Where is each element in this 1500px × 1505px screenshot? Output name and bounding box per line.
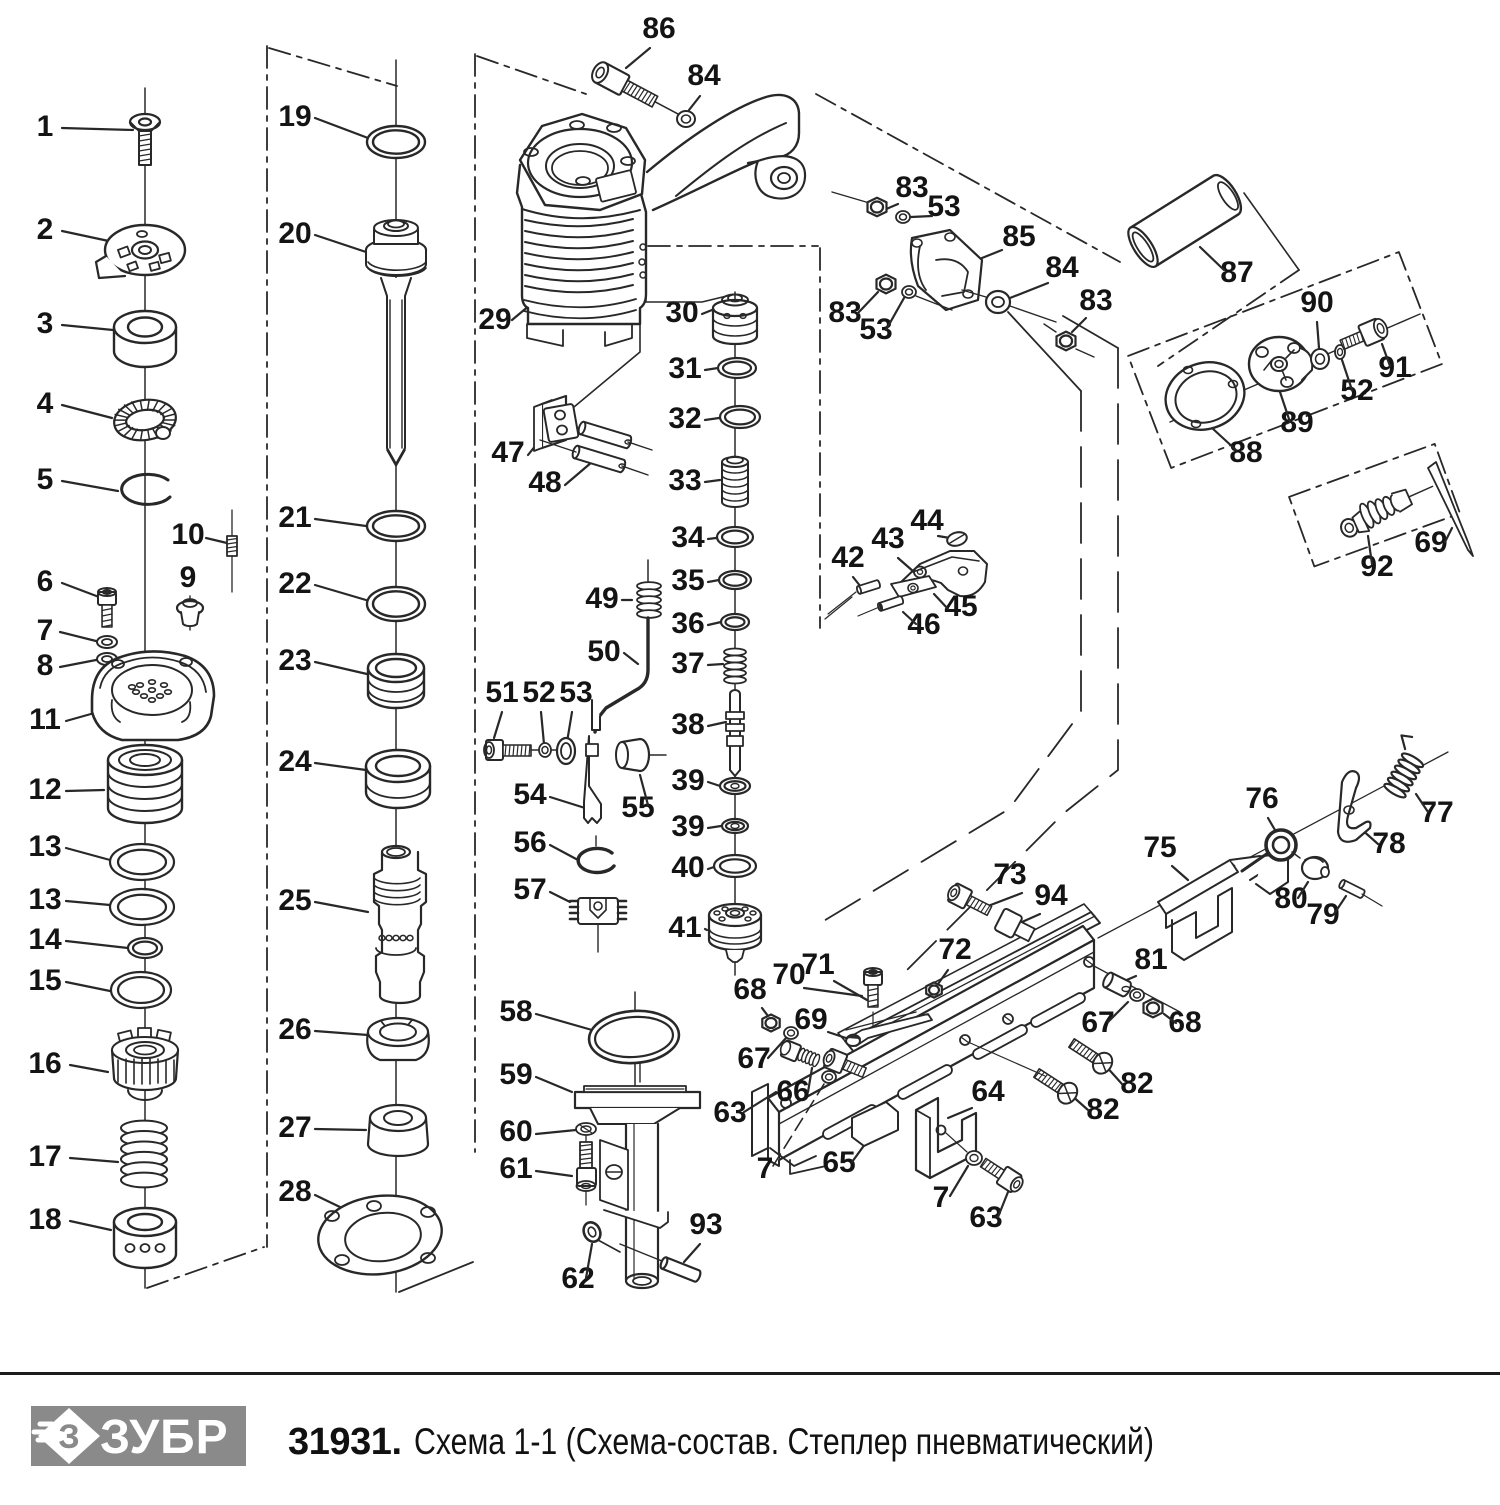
svg-text:69: 69 — [794, 1003, 827, 1036]
svg-text:38: 38 — [671, 708, 704, 741]
svg-text:32: 32 — [668, 402, 701, 435]
svg-text:6: 6 — [37, 565, 54, 598]
svg-text:73: 73 — [993, 858, 1026, 891]
svg-text:59: 59 — [499, 1058, 532, 1091]
svg-text:47: 47 — [491, 436, 524, 469]
svg-text:46: 46 — [907, 608, 940, 641]
svg-text:21: 21 — [278, 501, 311, 534]
svg-text:39: 39 — [671, 810, 704, 843]
svg-text:66: 66 — [776, 1075, 809, 1108]
svg-text:17: 17 — [28, 1140, 61, 1173]
svg-text:15: 15 — [28, 964, 61, 997]
svg-text:76: 76 — [1245, 782, 1278, 815]
svg-text:94: 94 — [1034, 879, 1068, 912]
svg-text:71: 71 — [801, 948, 834, 981]
svg-text:30: 30 — [665, 296, 698, 329]
svg-text:56: 56 — [513, 826, 546, 859]
svg-text:14: 14 — [28, 923, 62, 956]
svg-text:82: 82 — [1120, 1067, 1153, 1100]
svg-text:93: 93 — [689, 1208, 722, 1241]
svg-text:16: 16 — [28, 1047, 61, 1080]
svg-text:25: 25 — [278, 884, 311, 917]
svg-text:52: 52 — [522, 676, 555, 709]
svg-text:84: 84 — [1045, 251, 1079, 284]
svg-text:90: 90 — [1300, 286, 1333, 319]
svg-text:37: 37 — [671, 647, 704, 680]
svg-text:63: 63 — [713, 1096, 746, 1129]
svg-text:10: 10 — [171, 518, 204, 551]
svg-text:26: 26 — [278, 1013, 311, 1046]
svg-text:33: 33 — [668, 464, 701, 497]
svg-text:20: 20 — [278, 217, 311, 250]
svg-text:7: 7 — [933, 1181, 950, 1214]
svg-text:83: 83 — [1079, 284, 1112, 317]
svg-text:49: 49 — [585, 582, 618, 615]
svg-text:68: 68 — [733, 973, 766, 1006]
svg-text:72: 72 — [938, 933, 971, 966]
svg-text:13: 13 — [28, 830, 61, 863]
svg-text:31931.: 31931. — [288, 1421, 402, 1463]
svg-text:18: 18 — [28, 1203, 61, 1236]
svg-text:65: 65 — [822, 1146, 855, 1179]
svg-text:19: 19 — [278, 100, 311, 133]
svg-text:86: 86 — [642, 12, 675, 45]
svg-text:29: 29 — [478, 303, 511, 336]
svg-text:11: 11 — [29, 703, 61, 736]
svg-text:77: 77 — [1420, 796, 1453, 829]
svg-text:67: 67 — [737, 1042, 770, 1075]
svg-text:80: 80 — [1274, 882, 1307, 915]
svg-text:34: 34 — [671, 521, 705, 554]
svg-text:35: 35 — [671, 564, 704, 597]
svg-text:81: 81 — [1134, 943, 1167, 976]
svg-text:З: З — [58, 1418, 79, 1456]
svg-text:12: 12 — [28, 773, 61, 806]
svg-text:22: 22 — [278, 567, 311, 600]
svg-text:43: 43 — [871, 522, 904, 555]
svg-text:23: 23 — [278, 644, 311, 677]
svg-text:28: 28 — [278, 1175, 311, 1208]
svg-text:51: 51 — [485, 676, 518, 709]
svg-text:4: 4 — [37, 387, 54, 420]
svg-text:68: 68 — [1168, 1006, 1201, 1039]
svg-text:57: 57 — [513, 873, 546, 906]
svg-text:53: 53 — [859, 313, 892, 346]
svg-text:44: 44 — [910, 504, 944, 537]
svg-text:7: 7 — [757, 1152, 774, 1185]
svg-text:13: 13 — [28, 883, 61, 916]
svg-text:5: 5 — [37, 463, 54, 496]
svg-text:85: 85 — [1002, 220, 1035, 253]
svg-text:53: 53 — [559, 676, 592, 709]
svg-text:83: 83 — [895, 171, 928, 204]
svg-text:2: 2 — [37, 213, 54, 246]
svg-text:88: 88 — [1229, 436, 1262, 469]
svg-text:82: 82 — [1086, 1093, 1119, 1126]
svg-text:50: 50 — [587, 635, 620, 668]
svg-text:27: 27 — [278, 1111, 311, 1144]
svg-text:60: 60 — [499, 1115, 532, 1148]
svg-text:69: 69 — [1414, 526, 1447, 559]
svg-text:83: 83 — [828, 296, 861, 329]
svg-text:64: 64 — [971, 1075, 1005, 1108]
svg-text:53: 53 — [927, 190, 960, 223]
svg-text:92: 92 — [1360, 550, 1393, 583]
svg-text:55: 55 — [621, 791, 654, 824]
svg-text:36: 36 — [671, 607, 704, 640]
svg-text:87: 87 — [1220, 256, 1253, 289]
svg-text:40: 40 — [671, 851, 704, 884]
svg-text:61: 61 — [499, 1152, 532, 1185]
svg-text:45: 45 — [944, 590, 977, 623]
svg-text:62: 62 — [561, 1262, 594, 1295]
svg-text:58: 58 — [499, 995, 532, 1028]
svg-text:9: 9 — [180, 561, 197, 594]
svg-text:Схема 1-1 (Схема-состав. Степл: Схема 1-1 (Схема-состав. Степлер пневмат… — [414, 1421, 1154, 1462]
svg-text:52: 52 — [1340, 374, 1373, 407]
svg-text:67: 67 — [1081, 1006, 1114, 1039]
svg-text:54: 54 — [513, 778, 547, 811]
svg-text:84: 84 — [687, 59, 721, 92]
svg-text:39: 39 — [671, 764, 704, 797]
svg-text:91: 91 — [1378, 351, 1411, 384]
svg-text:1: 1 — [37, 110, 54, 143]
svg-text:24: 24 — [278, 745, 312, 778]
svg-text:48: 48 — [528, 466, 561, 499]
svg-text:42: 42 — [831, 541, 864, 574]
svg-text:31: 31 — [668, 352, 701, 385]
svg-text:41: 41 — [668, 911, 701, 944]
svg-text:3: 3 — [37, 307, 54, 340]
svg-text:ЗУБР: ЗУБР — [100, 1411, 229, 1464]
svg-text:7: 7 — [37, 614, 54, 647]
svg-text:8: 8 — [37, 649, 54, 682]
svg-text:75: 75 — [1143, 831, 1176, 864]
